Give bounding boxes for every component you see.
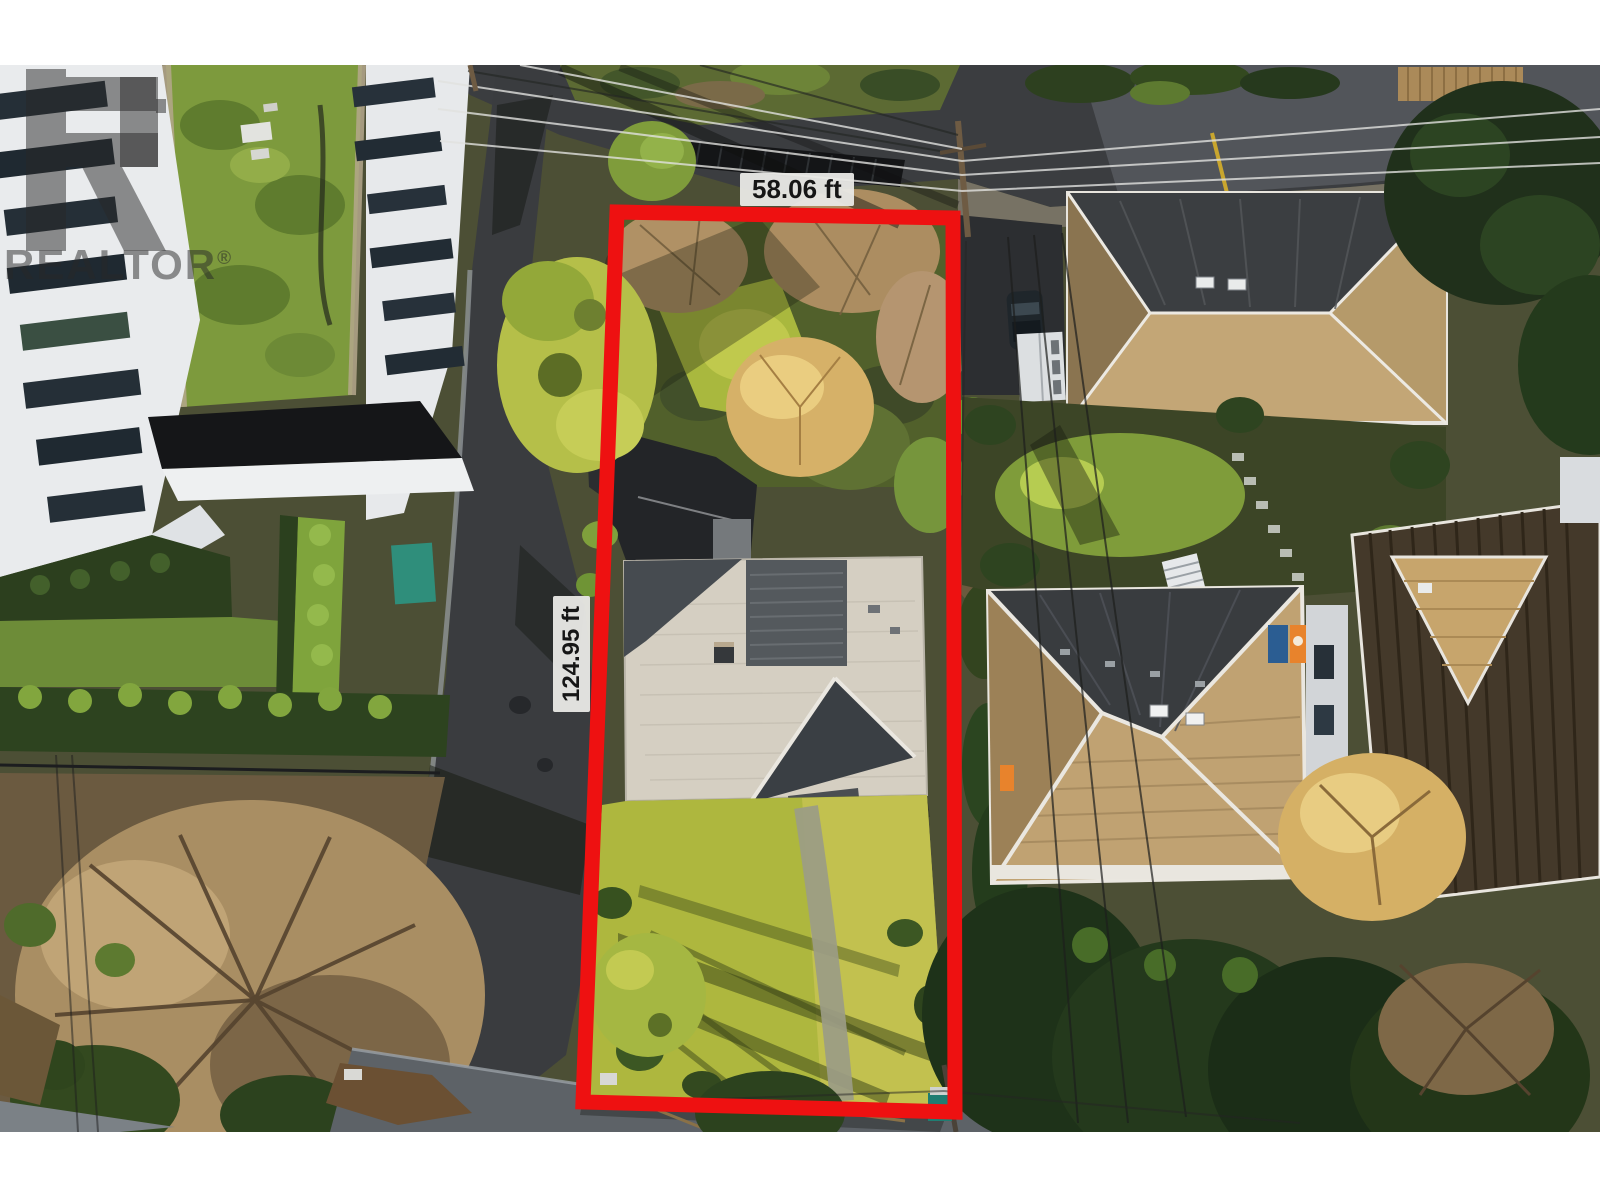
skylight: [1228, 279, 1246, 290]
orange-marker: [1000, 765, 1014, 791]
aerial-photo: /* stroke-width bound via second attr bi…: [0, 65, 1600, 1132]
utility-marker: [344, 1069, 362, 1080]
letterbox-bottom: [0, 1132, 1600, 1200]
screenshot-canvas: /* stroke-width bound via second attr bi…: [0, 0, 1600, 1200]
white-shed: [1016, 332, 1065, 402]
skylight: [1418, 583, 1432, 593]
skylight: [1186, 713, 1204, 725]
northeast-house: [958, 193, 1446, 423]
letterbox-top: [0, 0, 1600, 65]
skylight: [1196, 277, 1214, 288]
side-depth-dimension-label: 124.95 ft: [553, 596, 590, 712]
aerial-scene: /* stroke-width bound via second attr bi…: [0, 65, 1600, 1132]
teal-canopy: [391, 543, 436, 605]
front-width-dimension-label: 58.06 ft: [740, 173, 854, 206]
blue-panel: [1268, 625, 1288, 663]
subject-house-roof: [624, 519, 930, 834]
subject-front-lawn: [586, 795, 948, 1109]
skylight: [1150, 705, 1168, 717]
